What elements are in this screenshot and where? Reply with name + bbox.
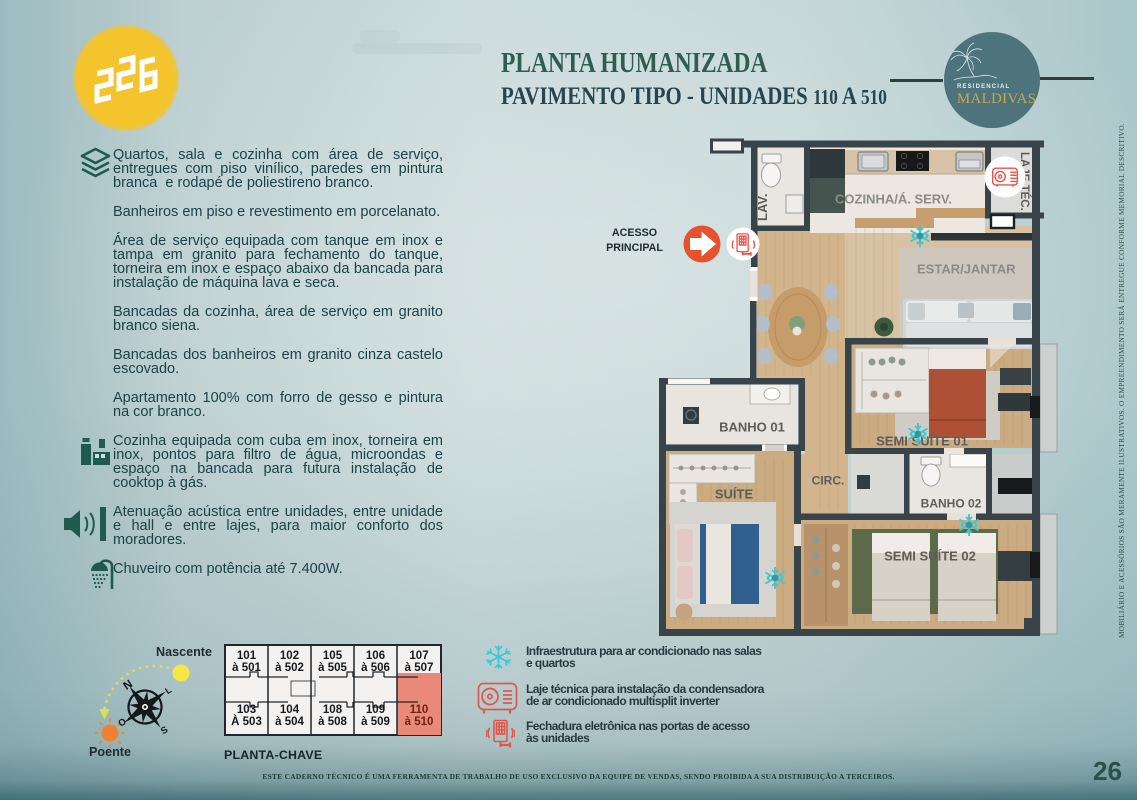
svg-text:à 506: à 506 [361, 662, 390, 674]
svg-text:À 503: À 503 [231, 715, 262, 728]
svg-text:à 507: à 507 [405, 662, 434, 674]
svg-text:CIRC.: CIRC. [812, 474, 845, 488]
svg-text:à 509: à 509 [361, 716, 390, 728]
svg-text:105: 105 [323, 650, 343, 662]
svg-text:109: 109 [366, 704, 385, 716]
svg-text:101: 101 [237, 650, 257, 662]
svg-text:SEMI SUÍTE 02: SEMI SUÍTE 02 [884, 549, 976, 564]
svg-text:à 508: à 508 [318, 716, 347, 728]
svg-text:103: 103 [237, 704, 256, 716]
svg-text:S: S [159, 724, 170, 737]
svg-text:à 505: à 505 [318, 662, 347, 674]
svg-text:L: L [163, 684, 173, 696]
svg-text:SUÍTE: SUÍTE [715, 487, 754, 502]
svg-text:à 502: à 502 [275, 662, 304, 674]
svg-text:à 510: à 510 [405, 716, 434, 728]
svg-text:106: 106 [366, 650, 385, 662]
svg-text:à 501: à 501 [232, 662, 261, 674]
svg-text:102: 102 [280, 650, 299, 662]
svg-text:108: 108 [323, 704, 343, 716]
svg-text:ESTAR/JANTAR: ESTAR/JANTAR [917, 262, 1016, 277]
svg-text:104: 104 [280, 704, 300, 716]
svg-text:110: 110 [410, 704, 429, 716]
svg-text:BANHO 01: BANHO 01 [719, 420, 785, 435]
svg-text:à 504: à 504 [275, 716, 304, 728]
svg-text:107: 107 [409, 650, 428, 662]
svg-text:O: O [116, 716, 128, 729]
svg-text:BANHO 02: BANHO 02 [921, 497, 982, 511]
svg-text:COZINHA/Á. SERV.: COZINHA/Á. SERV. [835, 192, 952, 207]
